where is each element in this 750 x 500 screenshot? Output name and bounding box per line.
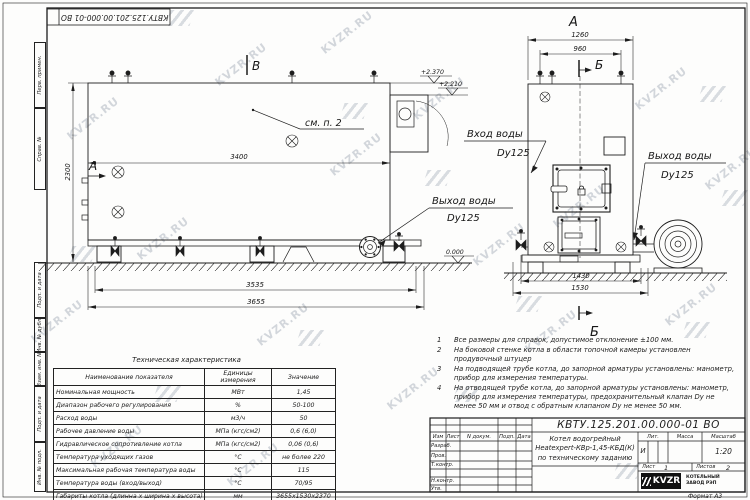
dim-3655: 3655 <box>247 298 265 306</box>
view-label-a-side: А <box>88 159 97 173</box>
table-row: Габариты котла (длинна х ширина х высота… <box>54 490 336 500</box>
notes-list: 1Все размеры для справок, допустимое отк… <box>437 336 736 412</box>
row-name: Рабочее давление воды <box>54 425 205 438</box>
tb-row-nkontr: Н.контр. <box>431 478 459 484</box>
dim-3400: 3400 <box>230 153 247 161</box>
side-view <box>38 71 474 271</box>
tb-lit-value: И <box>638 447 648 455</box>
elevation-zero: 0.000 <box>446 249 464 256</box>
margin-box-inv-podl: Инв. № подл. <box>34 442 46 492</box>
table-row: Рабочее давление водыМПа (кгс/см2)0,6 (6… <box>54 425 336 438</box>
top-stamp: КВТУ.125.201.00.000-01 ВО <box>59 9 170 25</box>
row-value: 0,06 (0,6) <box>272 438 336 451</box>
inlet-label-1: Вход воды <box>467 129 523 140</box>
tb-col-podp: Подп. <box>498 434 516 440</box>
table-row: Номинальная мощностьМВт1,45 <box>54 386 336 399</box>
see-note-label: см. п. 2 <box>305 118 342 129</box>
section-label-b-top: Б <box>595 58 603 72</box>
inlet-label-2: Dy125 <box>497 148 530 159</box>
kvzr-logo-bars-icon <box>642 477 651 486</box>
row-name: Габариты котла (длинна х ширина х высота… <box>54 490 205 500</box>
margin-box-inv-dubl: Инв. № дубл. <box>34 318 46 352</box>
note-text: На боковой стенке котла в области топочн… <box>454 346 736 364</box>
row-value: 0,6 (6,0) <box>272 425 336 438</box>
kvzr-logo-subtitle: КОТЕЛЬНЫЙ ЗАВОД РЭП <box>686 475 742 487</box>
row-name: Температура воды (вход/выход) <box>54 477 205 490</box>
format-note: Формат А3 <box>688 493 722 500</box>
row-units: м3/ч <box>205 412 272 425</box>
table-row: Гидравлическое сопротивление котлаМПа (к… <box>54 438 336 451</box>
tb-sheet-value: 1 <box>664 464 674 472</box>
col-units-header: Единицы измерения <box>205 369 272 386</box>
note-number: 1 <box>437 336 454 345</box>
note-number: 3 <box>437 365 454 383</box>
row-value: не более 220 <box>272 451 336 464</box>
product-name-line1: Котел водогрейный <box>534 435 636 443</box>
note-item: 4На отводящей трубе котла, до запорной а… <box>437 384 736 411</box>
note-number: 2 <box>437 346 454 364</box>
row-units: % <box>205 399 272 412</box>
dim-960: 960 <box>574 45 587 53</box>
margin-label: Справ. № <box>37 136 43 161</box>
note-item: 3На подводящей трубе котла, до запорной … <box>437 365 736 383</box>
row-units: мм <box>205 490 272 500</box>
table-row: Диапазон рабочего регулирования%50-100 <box>54 399 336 412</box>
row-name: Расход воды <box>54 412 205 425</box>
elevation-mid: +2.210 <box>439 81 462 88</box>
tech-table: Техническая характеристика Наименование … <box>53 356 320 500</box>
row-name: Максимальная рабочая температура воды <box>54 464 205 477</box>
row-units: °С <box>205 464 272 477</box>
dim-1530: 1530 <box>571 284 588 292</box>
tb-col-doc: N докум. <box>460 434 498 440</box>
outlet-label-side-1: Выход воды <box>432 196 496 207</box>
dim-1430: 1430 <box>572 272 589 280</box>
margin-box-podp-data-2: Подп. и дата <box>34 386 46 442</box>
tb-sheets-label: Листов <box>696 464 722 470</box>
view-label-a-front: А <box>568 15 578 30</box>
tech-table-header: Наименование показателя Единицы измерени… <box>54 369 336 386</box>
row-units: МВт <box>205 386 272 399</box>
margin-label: Перв. примен. <box>37 56 43 95</box>
col-value-header: Значение <box>272 369 336 386</box>
tb-row-tkontr: Т.контр. <box>431 462 459 468</box>
kvzr-logo-sub2: ЗАВОД РЭП <box>686 481 742 487</box>
row-name: Диапазон рабочего регулирования <box>54 399 205 412</box>
row-units: °С <box>205 477 272 490</box>
row-value: 70/95 <box>272 477 336 490</box>
dim-3535: 3535 <box>246 281 264 289</box>
row-value: 1,45 <box>272 386 336 399</box>
tb-scale-value: 1:20 <box>702 447 745 456</box>
note-number: 4 <box>437 384 454 411</box>
margin-label: Инв. № дубл. <box>37 317 43 353</box>
tb-lit-label: Лит. <box>638 434 668 440</box>
table-row: Температура воды (вход/выход)°С70/95 <box>54 477 336 490</box>
row-value: 50 <box>272 412 336 425</box>
row-name: Гидравлическое сопротивление котла <box>54 438 205 451</box>
outlet-label-side-2: Dy125 <box>447 213 480 224</box>
view-label-b: В <box>252 59 260 73</box>
row-units: °С <box>205 451 272 464</box>
table-row: Максимальная рабочая температура воды°С1… <box>54 464 336 477</box>
tb-sheet-label: Лист <box>642 464 660 470</box>
margin-box-perv-primen: Перв. примен. <box>34 42 46 108</box>
row-value: 50-100 <box>272 399 336 412</box>
table-row: Расход водым3/ч50 <box>54 412 336 425</box>
tb-mass-label: Масса <box>668 434 702 440</box>
product-name-line2: Heatexpert-КВр-1,45-КБД(К) <box>534 444 636 452</box>
doc-number: КВТУ.125.201.00.000-01 ВО <box>534 419 743 431</box>
row-value: 3655х1530х2370 <box>272 490 336 500</box>
col-name-header: Наименование показателя <box>54 369 205 386</box>
kvzr-logo-text: KVZR <box>653 476 680 486</box>
drawing-sheet: KVZR.RU KVZR.RU KVZR.RU KVZR.RU KVZR.RU … <box>0 0 750 500</box>
outlet-label-front-1: Выход воды <box>648 151 712 162</box>
margin-label: Инв. № подл. <box>37 449 43 485</box>
tb-row-prov: Пров. <box>431 453 459 459</box>
product-name-line3: по техническому заданию <box>534 454 636 462</box>
outlet-label-front-2: Dy125 <box>661 170 694 181</box>
note-item: 2На боковой стенке котла в области топоч… <box>437 346 736 364</box>
row-name: Номинальная мощность <box>54 386 205 399</box>
tb-scale-label: Масштаб <box>702 434 745 440</box>
margin-box-sprav: Справ. № <box>34 108 46 190</box>
note-text: На отводящей трубе котла, до запорной ар… <box>454 384 736 411</box>
margin-label: Взам. инв. № <box>37 351 43 386</box>
row-value: 115 <box>272 464 336 477</box>
margin-box-vzam-inv: Взам. инв. № <box>34 352 46 386</box>
front-view-texts: А Б Б 1260 960 1430 1530 Вход воды Dy125… <box>467 15 712 340</box>
tb-row-razrab: Разраб. <box>431 443 459 449</box>
side-view-dimensions <box>68 55 513 310</box>
margin-box-podp-data-1: Подп. и дата <box>34 262 46 318</box>
dim-1260: 1260 <box>571 31 588 39</box>
kvzr-logo: KVZR <box>641 473 681 489</box>
row-name: Температура уходящих газов <box>54 451 205 464</box>
tb-sheets-value: 2 <box>726 464 738 472</box>
tb-row-utv: Утв. <box>431 486 459 492</box>
dim-2300: 2300 <box>64 163 72 180</box>
note-text: Все размеры для справок, допустимое откл… <box>454 336 673 345</box>
table-row: Температура уходящих газов°Сне более 220 <box>54 451 336 464</box>
elevation-top: +2.370 <box>421 69 444 76</box>
tb-col-list: Лист <box>446 434 460 440</box>
note-item: 1Все размеры для справок, допустимое отк… <box>437 336 736 345</box>
margin-label: Подп. и дата <box>37 396 43 431</box>
top-stamp-text: КВТУ.125.201.00.000-01 ВО <box>61 13 168 22</box>
note-text: На подводящей трубе котла, до запорной а… <box>454 365 736 383</box>
tb-col-izm: Изм <box>430 434 446 440</box>
row-units: МПа (кгс/см2) <box>205 425 272 438</box>
tech-table-title: Техническая характеристика <box>53 356 320 368</box>
margin-label: Подп. и дата <box>37 272 43 307</box>
row-units: МПа (кгс/см2) <box>205 438 272 451</box>
tb-col-data: Дата <box>516 434 532 440</box>
